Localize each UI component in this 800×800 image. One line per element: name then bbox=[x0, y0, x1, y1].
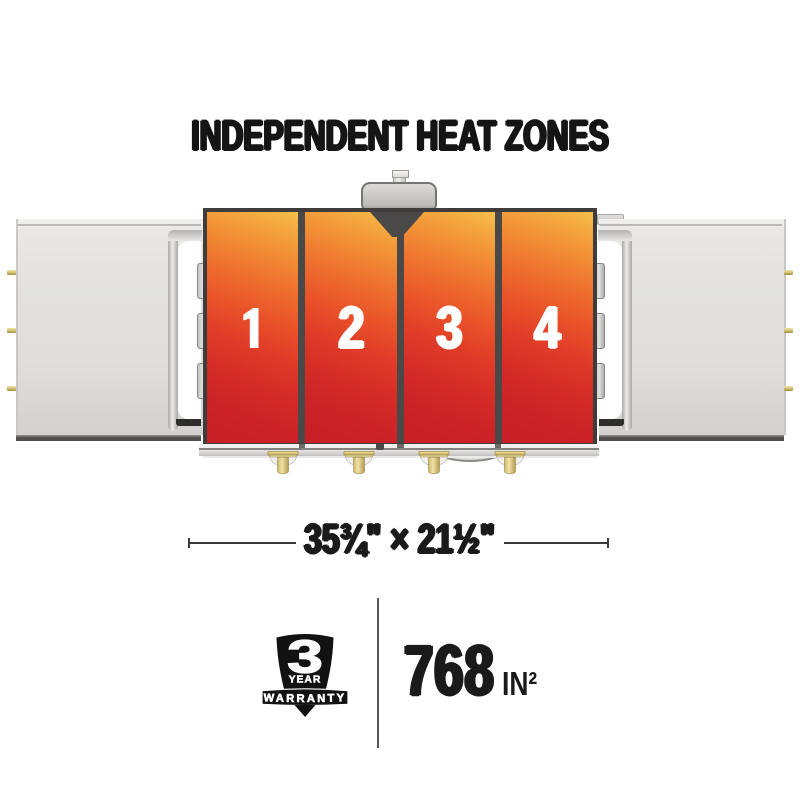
svg-text:YEAR: YEAR bbox=[289, 675, 322, 686]
svg-text:WARRANTY: WARRANTY bbox=[263, 692, 346, 705]
